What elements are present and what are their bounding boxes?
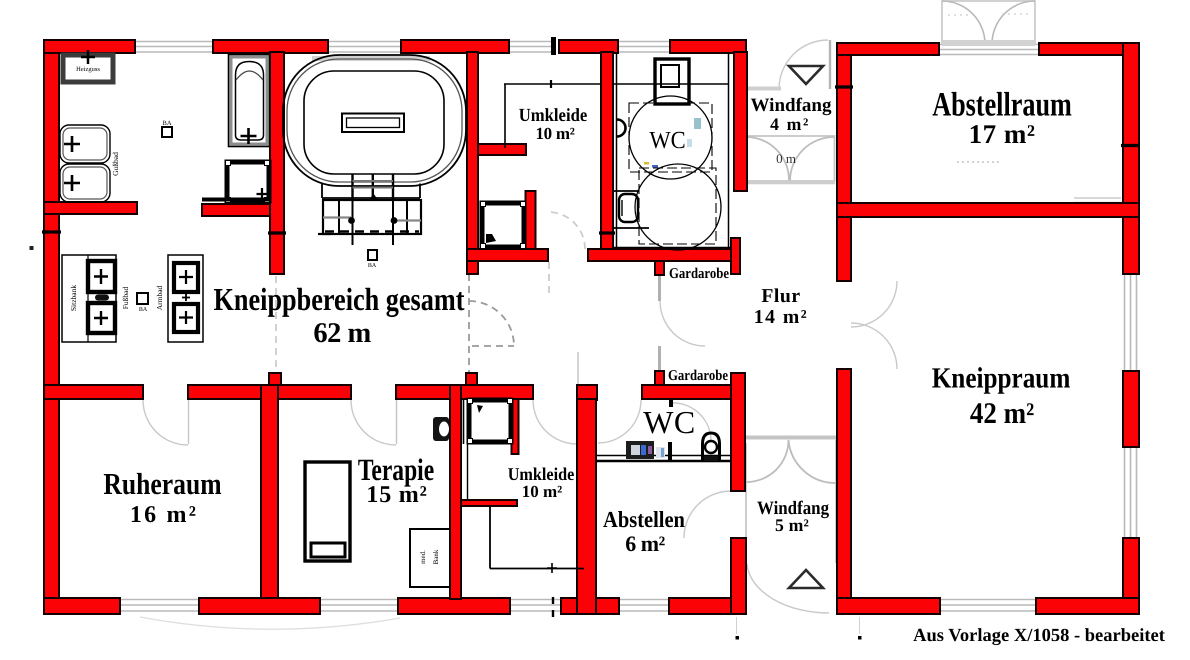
- svg-text:10 m²: 10 m²: [522, 482, 563, 501]
- svg-text:Gardarobe: Gardarobe: [669, 266, 729, 282]
- svg-text:14 m²: 14 m²: [754, 306, 808, 328]
- svg-text:Windfang: Windfang: [751, 95, 832, 116]
- svg-text:Umkleide: Umkleide: [519, 106, 587, 126]
- svg-text:Abstellraum: Abstellraum: [932, 87, 1072, 124]
- svg-text:Sitzbank: Sitzbank: [69, 285, 78, 311]
- svg-text:Gardarobe: Gardarobe: [668, 368, 728, 384]
- svg-text:Kneippbereich gesamt: Kneippbereich gesamt: [214, 281, 465, 318]
- svg-text:5 m²: 5 m²: [775, 515, 809, 535]
- svg-text:Aus Vorlage X/1058 - bearbeite: Aus Vorlage X/1058 - bearbeitet: [913, 626, 1166, 646]
- svg-text:Umkleide: Umkleide: [508, 464, 575, 484]
- svg-text:62 m: 62 m: [313, 318, 371, 349]
- svg-text:42 m²: 42 m²: [970, 397, 1034, 430]
- svg-text:BA: BA: [162, 120, 171, 127]
- svg-text:Flur: Flur: [761, 285, 800, 307]
- svg-text:Gußbad: Gußbad: [111, 152, 120, 176]
- svg-text:med.: med.: [419, 550, 427, 564]
- svg-text:6 m²: 6 m²: [625, 531, 665, 556]
- svg-text:Abstellen: Abstellen: [603, 507, 685, 532]
- svg-text:WC: WC: [649, 127, 685, 154]
- svg-text:Heizguss: Heizguss: [76, 66, 100, 73]
- svg-text:WC: WC: [643, 404, 696, 440]
- svg-text:Bank: Bank: [432, 549, 440, 564]
- svg-text:Fußbad: Fußbad: [121, 287, 130, 310]
- svg-text:BA: BA: [139, 307, 148, 313]
- svg-text:Kneippraum: Kneippraum: [932, 363, 1071, 395]
- svg-text:Ruheraum: Ruheraum: [103, 467, 221, 501]
- svg-text:17 m²: 17 m²: [969, 119, 1036, 149]
- svg-text:4 m²: 4 m²: [770, 114, 810, 134]
- svg-text:Armbad: Armbad: [155, 285, 164, 310]
- svg-text:15 m²: 15 m²: [366, 482, 427, 508]
- svg-text:16 m²: 16 m²: [130, 502, 198, 528]
- svg-text:0 m: 0 m: [776, 151, 796, 166]
- svg-text:10 m²: 10 m²: [535, 124, 574, 143]
- svg-text:BA: BA: [368, 263, 377, 269]
